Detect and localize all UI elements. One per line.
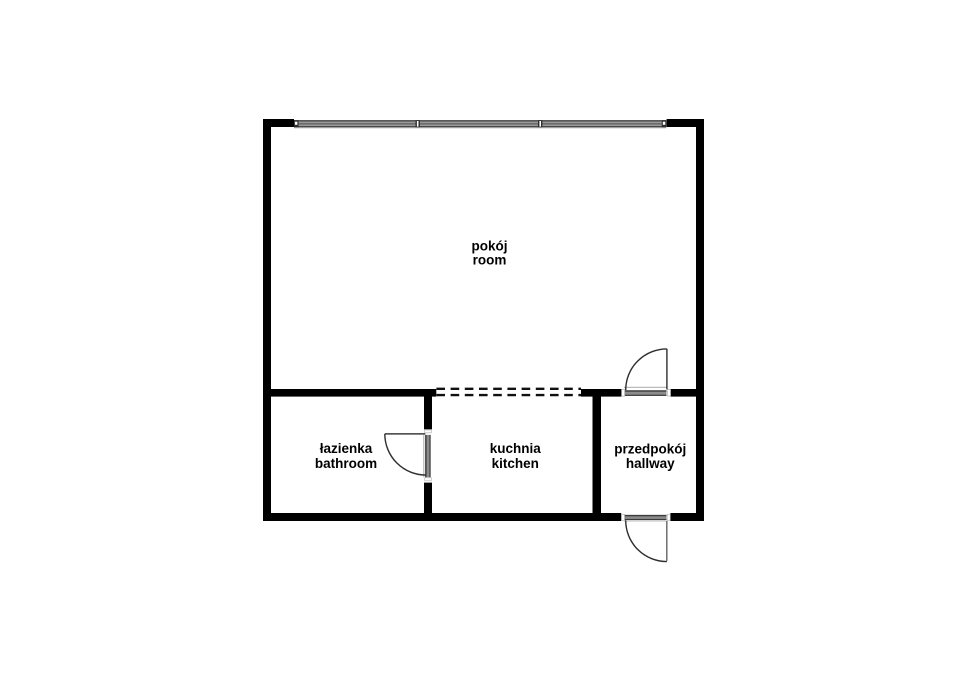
svg-text:hallway: hallway [626, 456, 675, 471]
svg-text:kitchen: kitchen [492, 456, 539, 471]
svg-text:łazienka: łazienka [320, 441, 373, 456]
svg-text:room: room [473, 253, 507, 268]
svg-text:kuchnia: kuchnia [490, 441, 542, 456]
svg-text:bathroom: bathroom [315, 456, 377, 471]
svg-text:przedpokój: przedpokój [614, 441, 686, 456]
svg-text:pokój: pokój [472, 239, 508, 254]
